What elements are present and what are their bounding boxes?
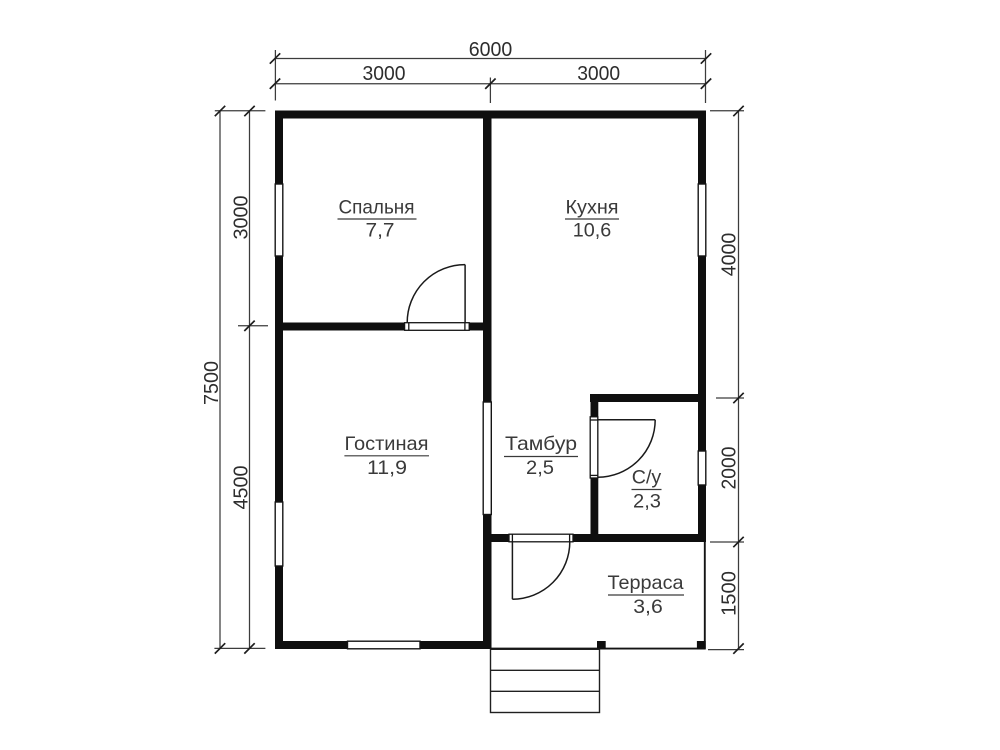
svg-text:6000: 6000 [469,39,513,61]
svg-text:Спальня: Спальня [339,197,415,219]
svg-text:2,3: 2,3 [633,491,661,513]
svg-text:Кухня: Кухня [566,197,619,219]
svg-text:Терраса: Терраса [608,572,684,594]
svg-text:11,9: 11,9 [367,457,407,479]
svg-text:Гостиная: Гостиная [345,433,429,455]
svg-text:3,6: 3,6 [633,596,663,618]
svg-text:4500: 4500 [231,466,253,510]
svg-text:7500: 7500 [201,361,223,405]
svg-text:3000: 3000 [231,196,253,240]
svg-text:3000: 3000 [577,63,620,85]
svg-text:Тамбур: Тамбур [505,433,577,455]
svg-text:С/у: С/у [632,467,662,489]
svg-text:4000: 4000 [719,233,741,277]
svg-text:3000: 3000 [363,63,406,85]
svg-text:2000: 2000 [719,447,741,490]
svg-text:1500: 1500 [719,571,741,616]
svg-text:2,5: 2,5 [526,457,554,479]
svg-text:7,7: 7,7 [366,220,395,242]
svg-text:10,6: 10,6 [573,220,612,242]
